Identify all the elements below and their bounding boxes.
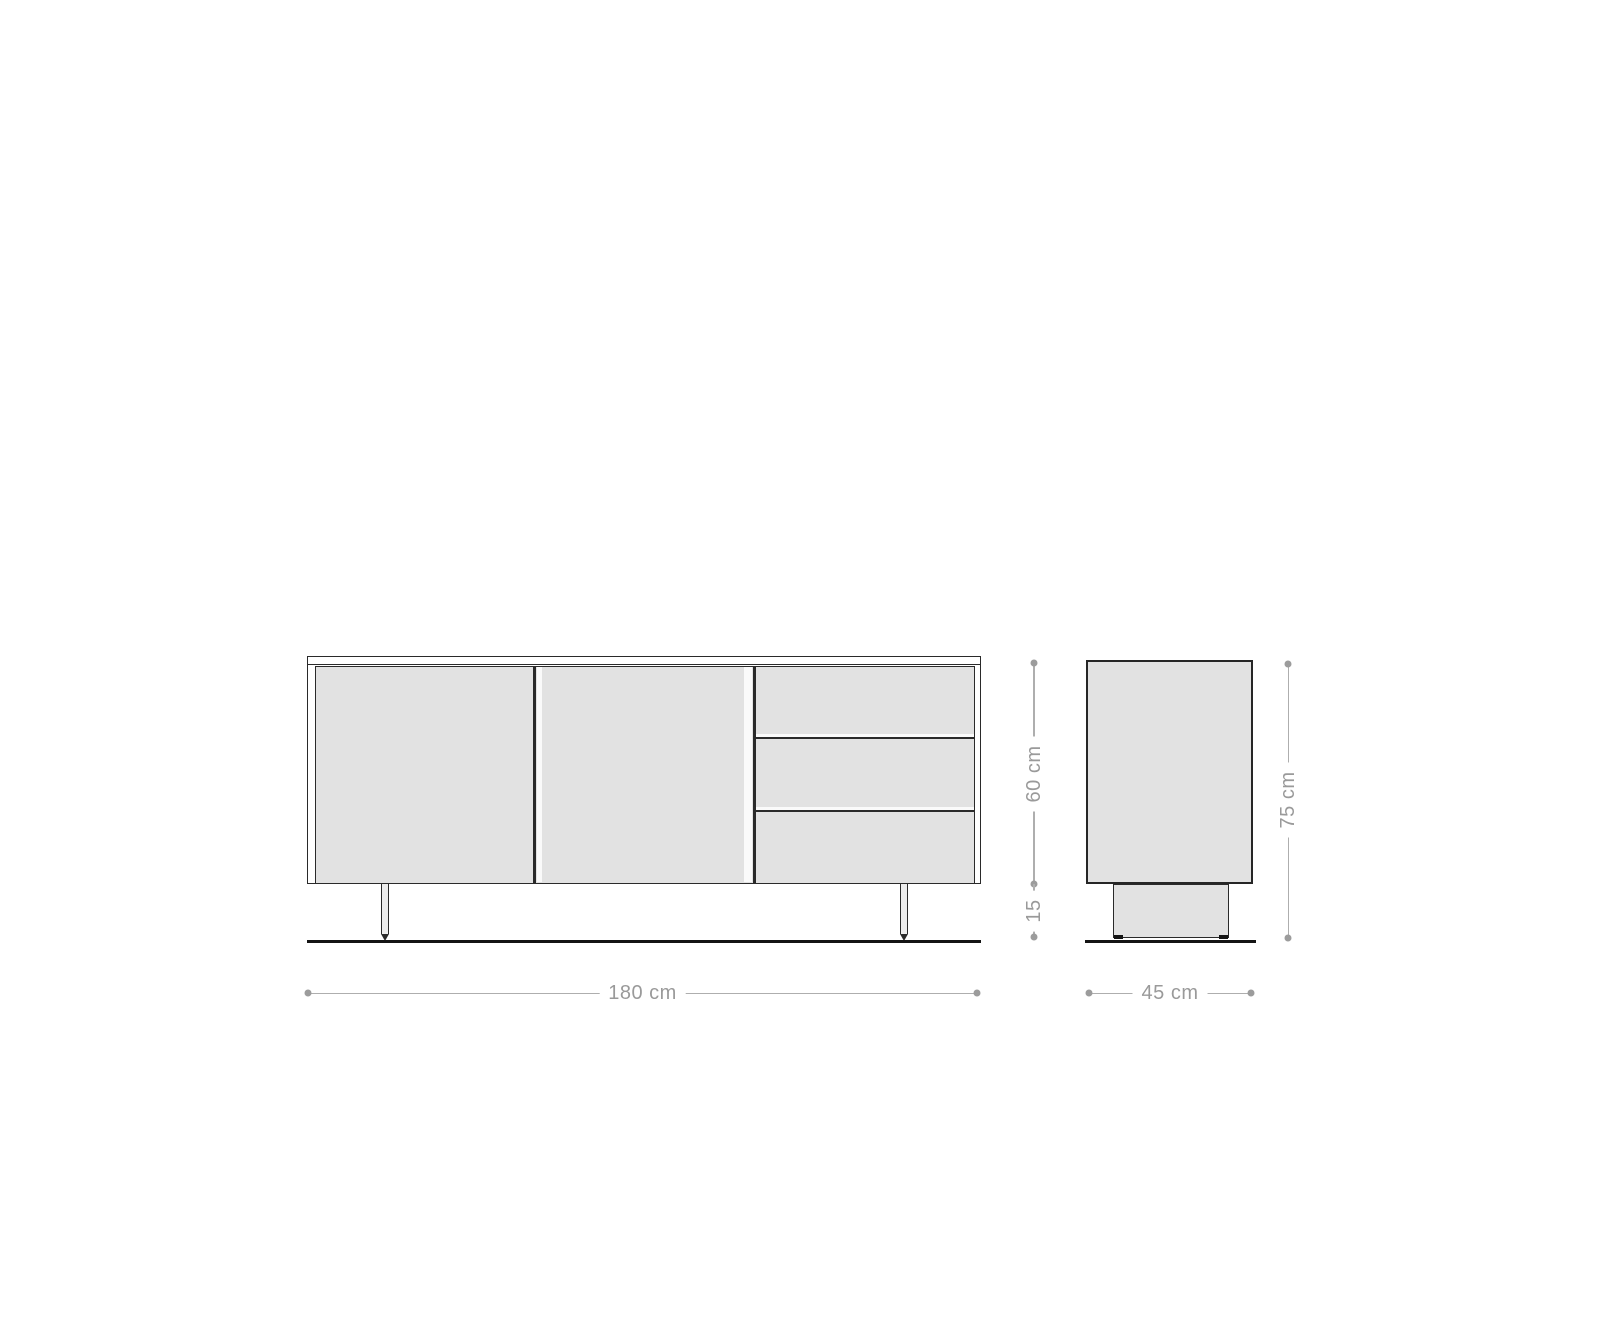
dimension-total-height-dot-top — [1285, 661, 1292, 668]
front-left-leg — [381, 884, 389, 934]
dimension-drawing: 180 cm 45 cm 60 cm 15 75 cm — [0, 0, 1600, 1333]
drawer-divider-line-1 — [756, 737, 975, 739]
dimension-base-height-label: 15 — [1021, 890, 1047, 931]
dimension-total-height-dot-bottom — [1285, 935, 1292, 942]
drawer-divider-line-2 — [756, 810, 975, 812]
dimension-total-height-label: 75 cm — [1275, 763, 1301, 838]
door-divider-line — [533, 666, 536, 883]
front-right-leg — [900, 884, 908, 934]
dimension-body-height-dot-top — [1030, 660, 1037, 667]
dimension-depth-dot-right — [1248, 990, 1255, 997]
front-ground-line — [307, 940, 981, 944]
side-ground-line — [1085, 940, 1256, 944]
dimension-body-height-label: 60 cm — [1021, 736, 1047, 811]
dimension-depth-label: 45 cm — [1133, 980, 1208, 1006]
front-panels — [315, 666, 975, 885]
drawer-column-shadow-gap — [744, 667, 752, 882]
dimension-width-label: 180 cm — [599, 980, 686, 1006]
side-base-foot-left — [1114, 935, 1123, 940]
dimension-depth-dot-left — [1086, 990, 1093, 997]
drawer-column-divider-line — [753, 666, 756, 883]
door-shadow-gap — [537, 667, 542, 882]
dimension-base-height-dot-bottom — [1030, 934, 1037, 941]
side-base-plinth — [1113, 884, 1229, 938]
side-base-foot-right — [1219, 935, 1228, 940]
side-body-panel — [1086, 660, 1253, 884]
dimension-width-dot-left — [305, 990, 312, 997]
dimension-width-dot-right — [974, 990, 981, 997]
